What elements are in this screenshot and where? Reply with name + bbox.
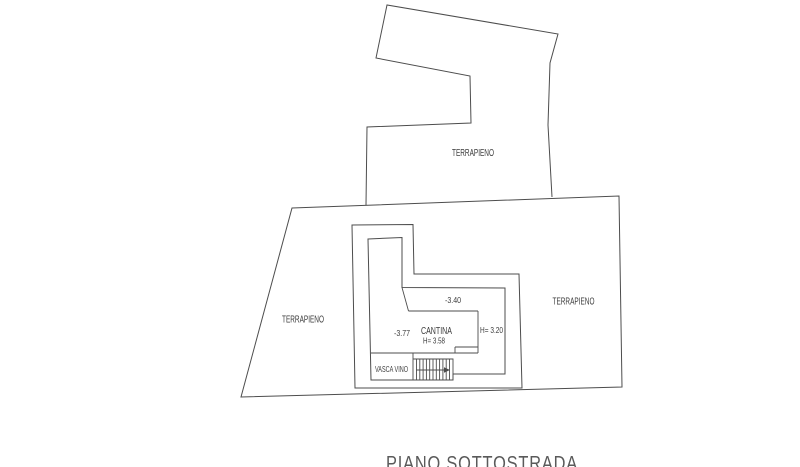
label-room-vasca-vino: VASCA VINO: [375, 364, 408, 374]
floor-plan-canvas: TERRAPIENO TERRAPIENO TERRAPIENO -3.40 -…: [0, 0, 800, 467]
label-level-upper: -3.40: [445, 296, 461, 305]
label-height-cantina: H= 3.58: [423, 337, 445, 346]
plan-title: PIANO SOTTOSTRADA: [386, 453, 578, 467]
label-level-cantina: -3.77: [394, 329, 410, 338]
label-height-right: H= 3.20: [480, 326, 503, 335]
label-terrapieno-left: TERRAPIENO: [282, 314, 324, 326]
label-terrapieno-right: TERRAPIENO: [553, 297, 595, 308]
label-room-cantina: CANTINA: [421, 325, 452, 337]
floor-plan-drawing: TERRAPIENO TERRAPIENO TERRAPIENO -3.40 -…: [0, 0, 800, 467]
label-terrapieno-top: TERRAPIENO: [452, 148, 494, 159]
terrapieno-upper-outline: [366, 5, 558, 205]
